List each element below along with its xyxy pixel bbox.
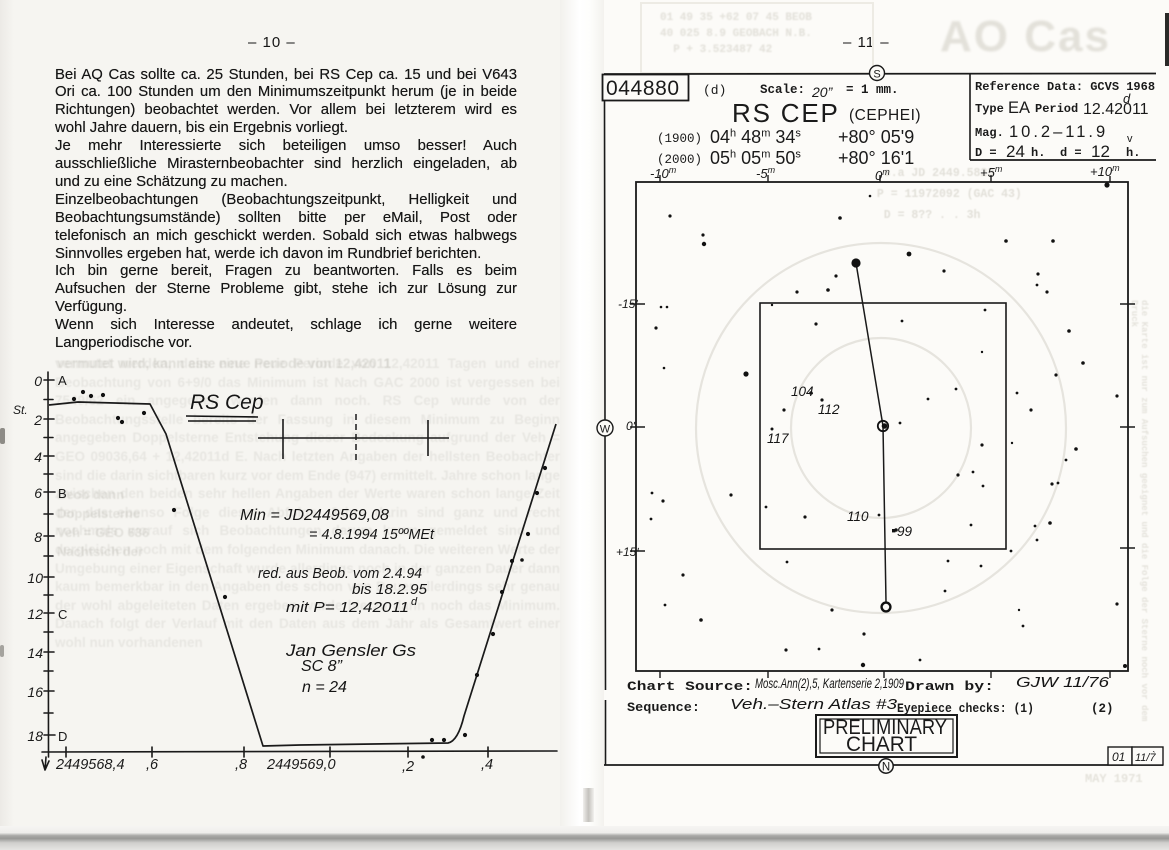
svg-text:EA: EA [1008,99,1030,117]
svg-text:SC 8”: SC 8” [301,658,343,675]
svg-text:+80° 05ʹ9: +80° 05ʹ9 [838,127,914,147]
svg-text:A: A [58,373,67,388]
svg-text:Mosc.Ann(2),5, Kartenserie 2,1: Mosc.Ann(2),5, Kartenserie 2,1909 [755,675,904,691]
svg-text:RS Cep: RS Cep [190,391,264,414]
svg-text:Mag.: Mag. [975,126,1004,140]
svg-text:S: S [873,69,880,81]
svg-text:,6: ,6 [146,757,159,773]
svg-text:10: 10 [27,570,43,586]
svg-text:D =: D = [975,146,997,160]
svg-text:Chart Source:: Chart Source: [627,679,753,694]
svg-text:2449569,0: 2449569,0 [266,757,336,773]
svg-text:Sequence:: Sequence: [627,700,700,715]
svg-text:,2: ,2 [402,759,414,775]
svg-text:+10m: +10m [1090,163,1120,179]
svg-text:+80° 16ʹ1: +80° 16ʹ1 [838,148,914,168]
svg-text:Veh.–Stern Atlas #3: Veh.–Stern Atlas #3 [730,697,897,713]
svg-text:01: 01 [1112,750,1125,764]
svg-text:d: d [411,596,418,608]
svg-text:Scale:: Scale: [760,83,805,97]
svg-text:10.2–11.9: 10.2–11.9 [1009,123,1108,141]
svg-text:d: d [1123,91,1131,106]
svg-text:-10m: -10m [650,165,677,181]
svg-text:C: C [58,607,67,622]
svg-text:(CEPHEI): (CEPHEI) [849,107,921,124]
svg-text:18: 18 [27,728,43,744]
svg-text:,4: ,4 [481,757,493,773]
svg-text:12: 12 [1091,142,1110,161]
svg-text:N: N [882,762,890,774]
svg-text:0ʹ: 0ʹ [626,419,636,433]
svg-text:mit P= 12,42011: mit P= 12,42011 [286,599,409,616]
svg-text:CHART: CHART [846,733,917,756]
svg-text:24: 24 [1006,142,1025,161]
svg-text:16: 16 [27,684,43,700]
svg-text:0: 0 [34,373,42,389]
svg-text:110: 110 [847,509,869,524]
svg-text:12.42011: 12.42011 [1083,101,1149,118]
svg-text:= 4.8.1994 15ººMEt: = 4.8.1994 15ººMEt [309,526,435,543]
svg-text:2: 2 [33,412,42,428]
svg-text:-15ʹ: -15ʹ [618,297,638,311]
svg-text:n = 24: n = 24 [302,679,347,696]
svg-text:99: 99 [897,524,913,539]
svg-text:+15ʹ: +15ʹ [616,545,639,559]
svg-text:04h 48m 34s: 04h 48m 34s [710,127,801,147]
svg-text:Eyepiece checks: (1): Eyepiece checks: (1) [897,702,1034,716]
svg-text:d =: d = [1060,146,1082,160]
svg-text:Type: Type [975,102,1004,116]
svg-text:D: D [58,729,67,744]
svg-text:Period: Period [1035,102,1078,116]
svg-text:2449568,4: 2449568,4 [55,757,125,773]
svg-text:(2): (2) [1091,702,1114,716]
svg-text:h.: h. [1126,146,1140,160]
svg-text:112: 112 [818,402,840,417]
svg-text:h.: h. [1031,146,1045,160]
svg-text:B: B [58,486,67,501]
svg-text:W: W [600,424,611,436]
svg-text:(1900): (1900) [657,132,702,146]
svg-text:red. aus Beob. vom 2.4.94: red. aus Beob. vom 2.4.94 [258,565,422,582]
svg-text:(2000): (2000) [657,153,702,167]
svg-text:GJW 11/76: GJW 11/76 [1016,674,1110,691]
svg-text:104: 104 [791,384,814,399]
svg-text:8: 8 [34,529,42,545]
svg-text:14: 14 [27,645,43,661]
svg-text:0m: 0m [875,167,890,183]
svg-text:,8: ,8 [235,757,247,773]
svg-text:(d): (d) [703,83,726,98]
svg-text:v: v [1127,133,1133,145]
svg-text:6: 6 [34,485,42,501]
svg-text:11/7̀: 11/7̀ [1135,751,1156,764]
svg-text:4: 4 [34,449,42,465]
svg-text:05h 05m 50s: 05h 05m 50s [710,148,801,168]
svg-text:St.: St. [13,403,28,417]
svg-text:044880: 044880 [606,77,680,100]
svg-text:Drawn by:: Drawn by: [905,679,994,694]
svg-text:12: 12 [27,606,43,622]
svg-text:= 1 mm.: = 1 mm. [846,83,899,97]
svg-text:117: 117 [767,431,789,446]
svg-text:-5m: -5m [756,165,776,181]
svg-text:Min = JD2449569,08: Min = JD2449569,08 [240,507,389,524]
svg-text:RS CEP: RS CEP [732,98,840,128]
